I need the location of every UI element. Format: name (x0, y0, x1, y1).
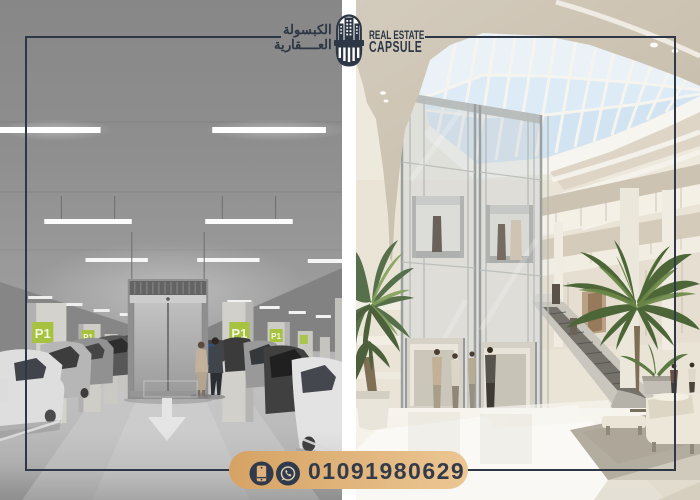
svg-text:P1: P1 (271, 332, 281, 341)
svg-text:P1: P1 (35, 326, 51, 341)
